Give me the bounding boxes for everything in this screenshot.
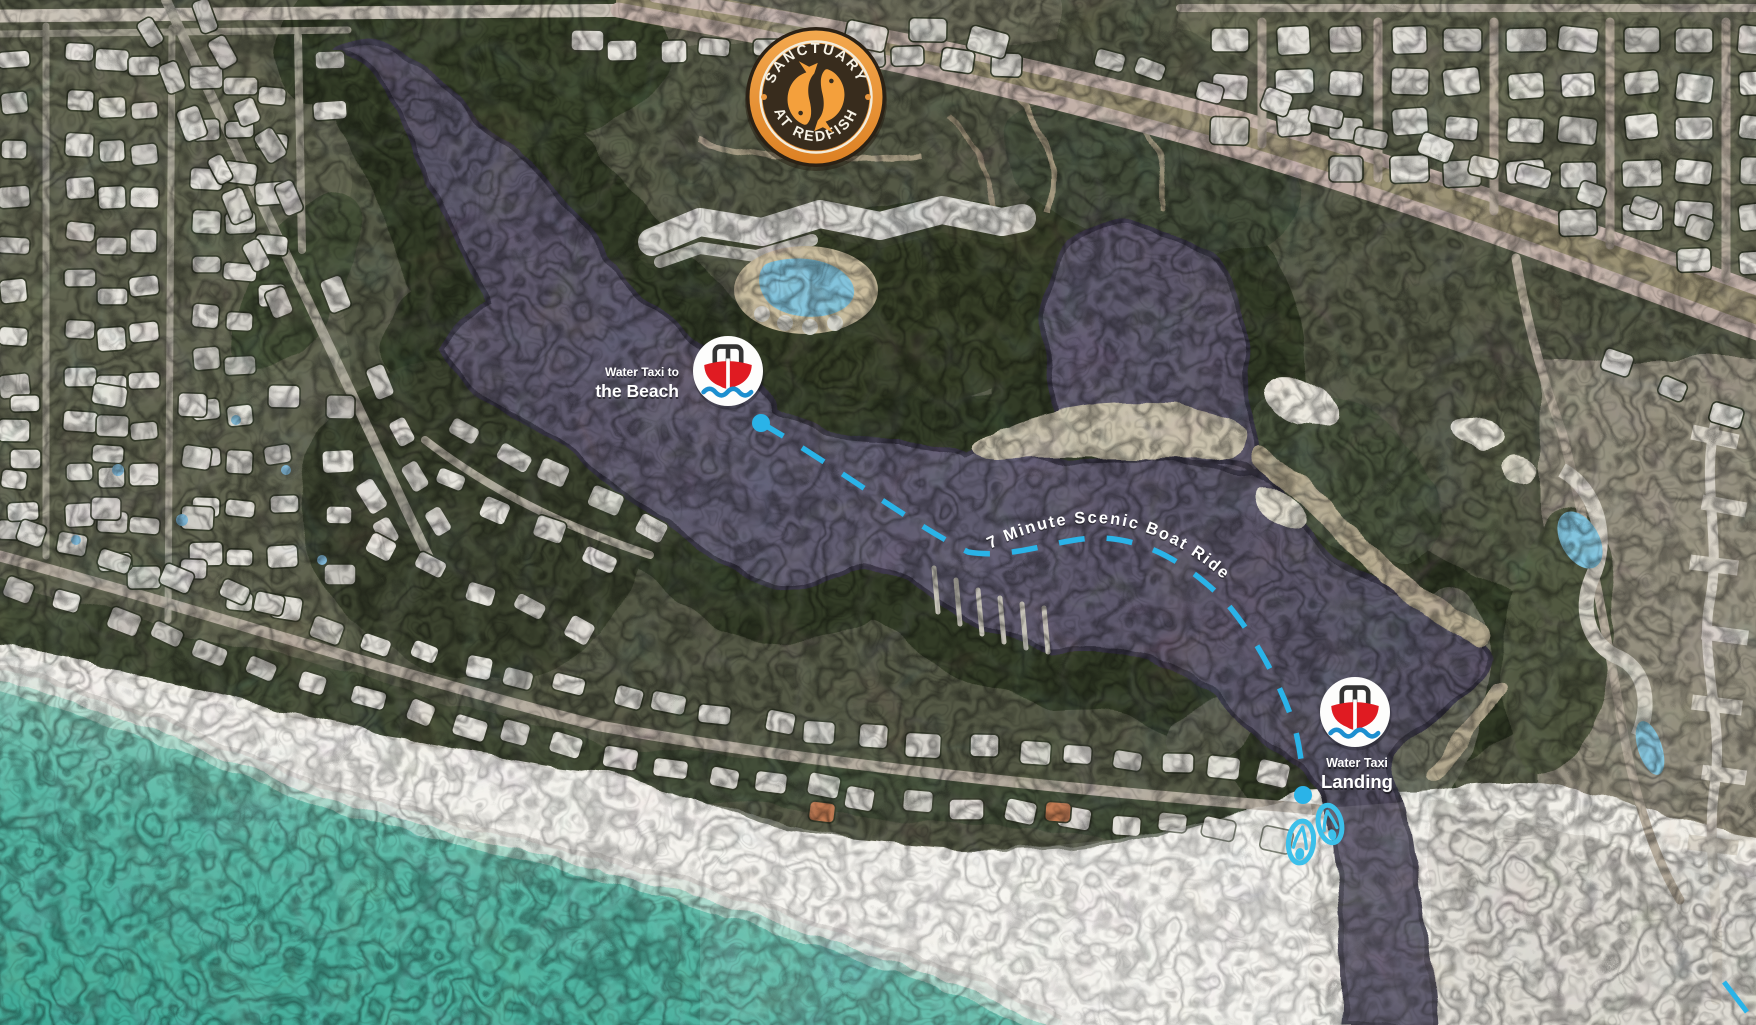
svg-text:Water Taxi to: Water Taxi to	[605, 365, 679, 379]
svg-text:Landing: Landing	[1321, 771, 1393, 792]
svg-text:the Beach: the Beach	[595, 381, 679, 401]
svg-text:Water Taxi: Water Taxi	[1326, 756, 1388, 770]
